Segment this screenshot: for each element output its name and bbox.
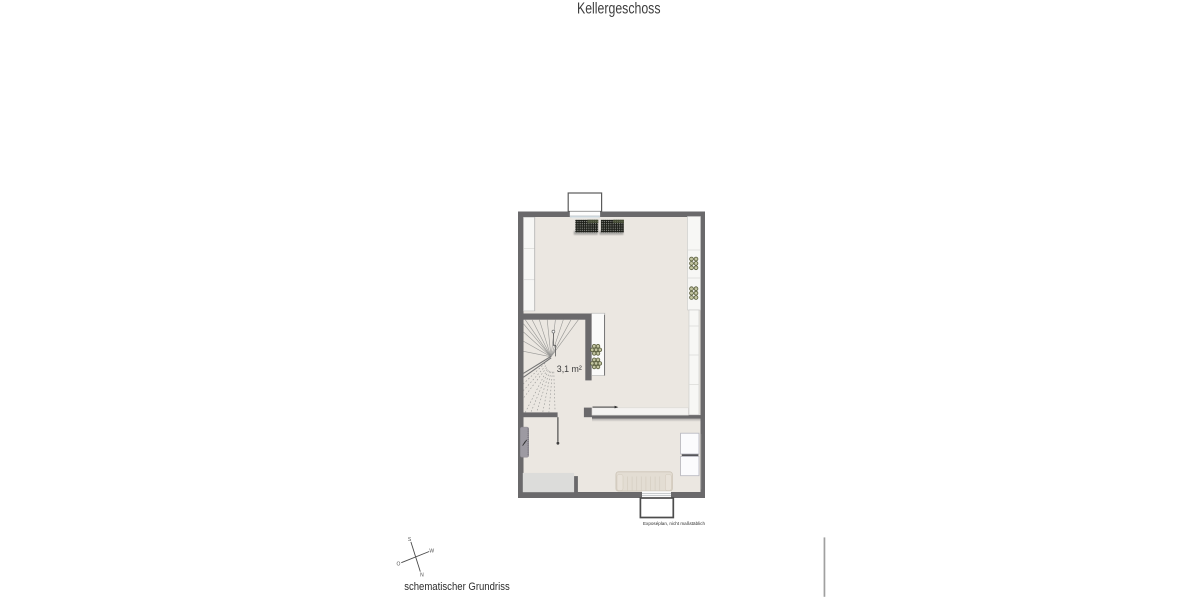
svg-text:N: N [420, 573, 424, 579]
svg-text:W: W [429, 548, 434, 554]
svg-text:3,1 m²: 3,1 m² [557, 364, 583, 375]
svg-text:Kellergeschoss: Kellergeschoss [577, 1, 661, 18]
svg-text:Exposéplan, nicht maßstäblich: Exposéplan, nicht maßstäblich [643, 521, 705, 527]
svg-text:O: O [396, 561, 400, 567]
svg-text:schematischer Grundriss: schematischer Grundriss [404, 581, 510, 593]
